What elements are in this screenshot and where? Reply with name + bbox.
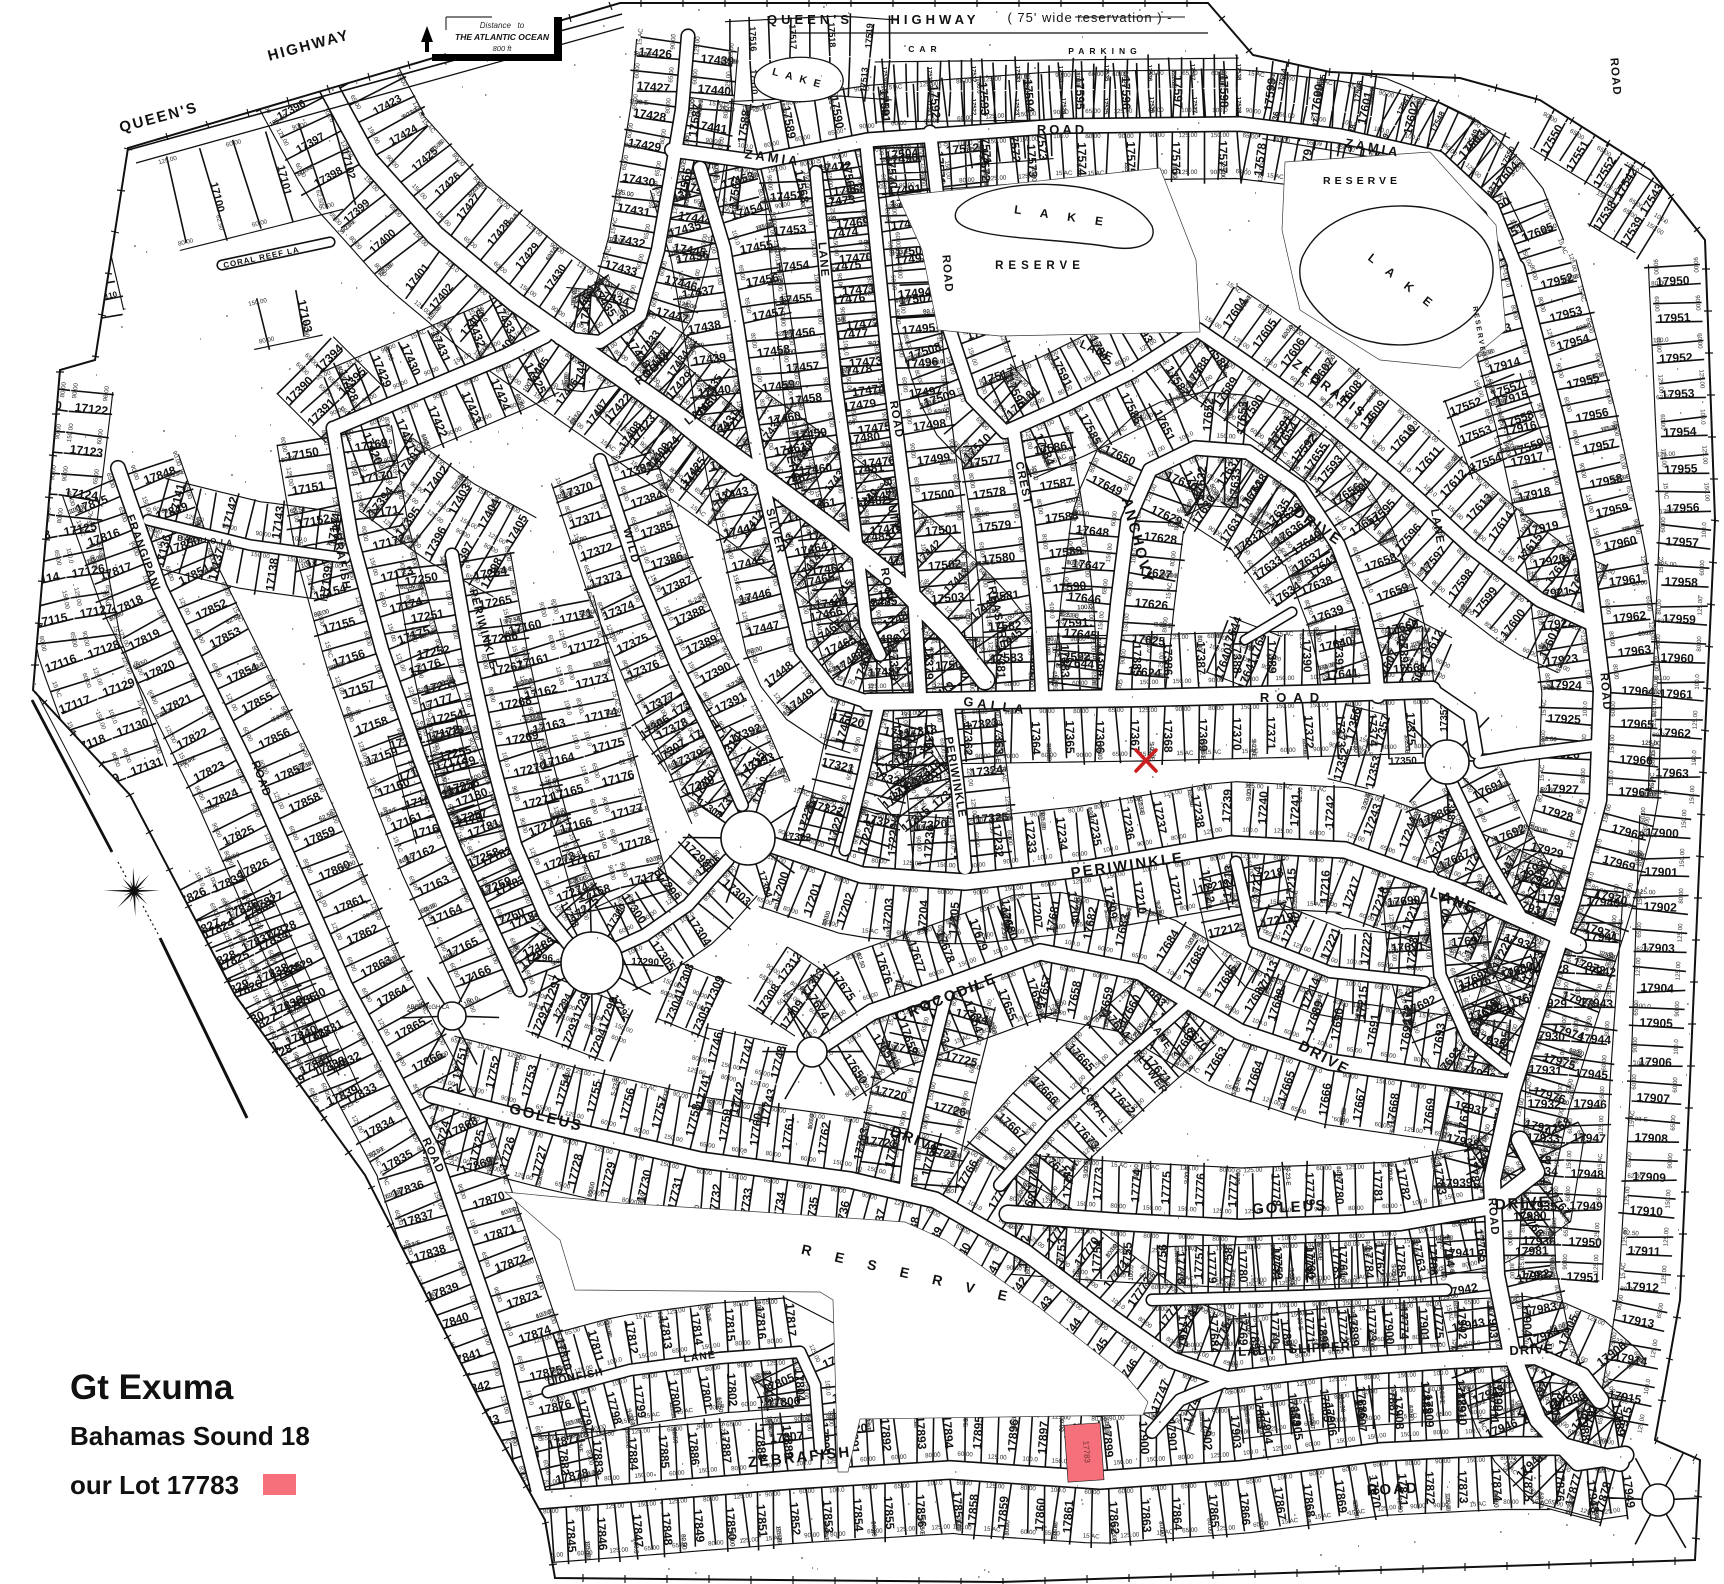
svg-text:90.00: 90.00 bbox=[1212, 1407, 1228, 1415]
svg-text:17535: 17535 bbox=[1103, 65, 1109, 82]
svg-text:90.00: 90.00 bbox=[1055, 72, 1071, 79]
svg-text:60.00: 60.00 bbox=[1534, 942, 1542, 958]
svg-text:80.00: 80.00 bbox=[1075, 1261, 1083, 1277]
svg-text:90.00: 90.00 bbox=[1118, 133, 1134, 140]
svg-text:65.00: 65.00 bbox=[1607, 952, 1615, 968]
svg-text:125.00: 125.00 bbox=[867, 683, 887, 690]
svg-text:100.0: 100.0 bbox=[955, 1515, 963, 1531]
svg-text:S-23-E: S-23-E bbox=[984, 659, 1004, 667]
svg-text:100.0: 100.0 bbox=[1045, 744, 1052, 760]
svg-text:90.00: 90.00 bbox=[1562, 1254, 1570, 1270]
svg-text:17904: 17904 bbox=[1640, 980, 1674, 995]
svg-text:62.50: 62.50 bbox=[1122, 71, 1129, 87]
svg-text:80.00: 80.00 bbox=[1620, 1286, 1636, 1294]
svg-text:100.0: 100.0 bbox=[841, 340, 849, 357]
svg-text:62.50: 62.50 bbox=[1235, 1168, 1243, 1184]
svg-text:90.00: 90.00 bbox=[1579, 914, 1587, 930]
svg-text:90.00: 90.00 bbox=[1070, 636, 1086, 643]
svg-text:125.00: 125.00 bbox=[1197, 1409, 1205, 1429]
svg-text:17370: 17370 bbox=[1230, 717, 1245, 751]
svg-text:125.00: 125.00 bbox=[987, 174, 1007, 182]
svg-text:65.00: 65.00 bbox=[1636, 922, 1644, 938]
svg-text:S-23-E: S-23-E bbox=[892, 815, 900, 835]
svg-text:17754: 17754 bbox=[1089, 1239, 1105, 1274]
svg-text:17911: 17911 bbox=[1628, 1243, 1662, 1259]
svg-text:125.00: 125.00 bbox=[1444, 1492, 1452, 1512]
svg-text:60.00: 60.00 bbox=[1216, 1282, 1232, 1290]
svg-text:60.00: 60.00 bbox=[893, 232, 901, 248]
svg-text:125.00: 125.00 bbox=[1659, 507, 1679, 515]
svg-text:S-23-E: S-23-E bbox=[1184, 1165, 1192, 1185]
svg-text:17875: 17875 bbox=[1521, 1468, 1535, 1502]
svg-text:150.00: 150.00 bbox=[1558, 1048, 1566, 1068]
svg-text:65.00: 65.00 bbox=[1436, 1410, 1452, 1418]
svg-text:90.00: 90.00 bbox=[804, 1531, 820, 1539]
svg-text:90.00: 90.00 bbox=[1560, 1015, 1568, 1031]
svg-text:125.00: 125.00 bbox=[1656, 450, 1676, 458]
svg-text:150.00: 150.00 bbox=[1076, 1200, 1096, 1208]
svg-text:15 AC: 15 AC bbox=[1538, 879, 1546, 897]
svg-text:65.00: 65.00 bbox=[1307, 631, 1323, 639]
svg-text:125.00: 125.00 bbox=[1348, 1306, 1356, 1326]
svg-text:17886: 17886 bbox=[686, 1431, 703, 1466]
svg-text:125.00: 125.00 bbox=[1598, 1115, 1606, 1135]
svg-text:62.50: 62.50 bbox=[926, 82, 934, 98]
svg-text:17525: 17525 bbox=[1102, 98, 1108, 115]
svg-text:17925: 17925 bbox=[1547, 711, 1581, 726]
svg-text:80.00: 80.00 bbox=[910, 823, 927, 831]
svg-text:17845: 17845 bbox=[563, 1519, 579, 1554]
svg-text:S-23-E: S-23-E bbox=[1648, 789, 1667, 797]
svg-text:90.00: 90.00 bbox=[975, 753, 991, 760]
svg-text:S-23-E: S-23-E bbox=[890, 248, 910, 256]
svg-text:60.00: 60.00 bbox=[1088, 71, 1104, 78]
svg-text:125.00: 125.00 bbox=[1178, 132, 1198, 139]
svg-text:90.00: 90.00 bbox=[697, 1422, 714, 1430]
svg-text:80.00: 80.00 bbox=[727, 1531, 735, 1548]
svg-text:80.00: 80.00 bbox=[1362, 1345, 1378, 1353]
svg-text:125.00: 125.00 bbox=[1345, 1164, 1365, 1172]
svg-text:17861: 17861 bbox=[1060, 1499, 1076, 1534]
svg-text:60.00: 60.00 bbox=[891, 119, 907, 127]
svg-text:17530: 17530 bbox=[881, 67, 887, 84]
svg-text:80.00: 80.00 bbox=[830, 1530, 846, 1538]
svg-text:125.00: 125.00 bbox=[1183, 1305, 1203, 1313]
svg-text:150.00: 150.00 bbox=[1665, 1189, 1673, 1209]
svg-text:17902: 17902 bbox=[1643, 899, 1677, 914]
svg-text:80.00: 80.00 bbox=[604, 1474, 620, 1482]
svg-text:125.00: 125.00 bbox=[1278, 1280, 1298, 1288]
svg-text:65.00: 65.00 bbox=[1563, 1221, 1571, 1237]
svg-text:15 AC: 15 AC bbox=[885, 83, 903, 91]
svg-text:S-23-E: S-23-E bbox=[1364, 1239, 1372, 1258]
svg-text:65.00: 65.00 bbox=[1182, 70, 1198, 77]
svg-text:100.0: 100.0 bbox=[1554, 1152, 1562, 1168]
svg-text:80.00: 80.00 bbox=[1550, 1254, 1558, 1270]
svg-text:125.00: 125.00 bbox=[985, 112, 1005, 120]
svg-text:125.00: 125.00 bbox=[1701, 445, 1709, 465]
svg-text:17296: 17296 bbox=[525, 953, 554, 965]
svg-text:125.00: 125.00 bbox=[1697, 596, 1705, 616]
svg-text:90.00: 90.00 bbox=[1569, 1084, 1577, 1100]
svg-text:17905: 17905 bbox=[1639, 1015, 1673, 1030]
svg-text:150.00: 150.00 bbox=[1177, 1206, 1197, 1214]
svg-text:17895: 17895 bbox=[970, 1415, 986, 1450]
svg-text:90.00: 90.00 bbox=[854, 85, 870, 93]
svg-text:90.00: 90.00 bbox=[1345, 673, 1361, 681]
svg-text:100.0: 100.0 bbox=[1128, 1264, 1136, 1280]
svg-text:17519: 17519 bbox=[863, 23, 875, 49]
svg-text:80.00: 80.00 bbox=[1580, 768, 1588, 784]
svg-text:80.00: 80.00 bbox=[1335, 1166, 1343, 1182]
svg-text:125.00: 125.00 bbox=[1519, 1253, 1527, 1273]
svg-text:17855: 17855 bbox=[881, 1496, 897, 1531]
svg-text:80.00: 80.00 bbox=[1218, 70, 1225, 86]
svg-text:65.00: 65.00 bbox=[1599, 1086, 1607, 1102]
svg-text:S-23-E: S-23-E bbox=[1284, 1166, 1292, 1185]
svg-text:17958: 17958 bbox=[1664, 574, 1698, 589]
svg-text:80.00: 80.00 bbox=[679, 1534, 687, 1551]
svg-text:90.00: 90.00 bbox=[1415, 627, 1431, 635]
svg-text:17364: 17364 bbox=[1029, 721, 1044, 755]
svg-text:150.00: 150.00 bbox=[1466, 1456, 1486, 1464]
svg-text:S-23-E: S-23-E bbox=[1432, 1184, 1451, 1192]
svg-text:80.00: 80.00 bbox=[1438, 1387, 1446, 1403]
svg-text:S-23-E: S-23-E bbox=[1456, 1400, 1464, 1420]
svg-text:125.00: 125.00 bbox=[902, 859, 922, 867]
svg-text:100.0: 100.0 bbox=[1310, 674, 1326, 682]
svg-text:125.00: 125.00 bbox=[1390, 1388, 1398, 1408]
svg-text:17864: 17864 bbox=[1169, 1497, 1185, 1532]
svg-text:62.50: 62.50 bbox=[1297, 786, 1305, 802]
svg-text:80.00: 80.00 bbox=[1171, 163, 1178, 179]
svg-text:15 AC: 15 AC bbox=[1541, 699, 1549, 717]
svg-text:125.00: 125.00 bbox=[1661, 1265, 1669, 1285]
svg-text:17367: 17367 bbox=[1128, 719, 1143, 753]
svg-text:60.00: 60.00 bbox=[1004, 681, 1020, 688]
svg-text:17365: 17365 bbox=[1063, 720, 1078, 754]
svg-text:100.0: 100.0 bbox=[1608, 770, 1616, 786]
svg-text:17817: 17817 bbox=[783, 1303, 799, 1338]
svg-text:80.00: 80.00 bbox=[1157, 1521, 1165, 1537]
svg-text:125.00: 125.00 bbox=[1148, 1247, 1168, 1255]
svg-text:15 AC: 15 AC bbox=[1082, 1532, 1100, 1540]
svg-text:17368: 17368 bbox=[1161, 719, 1176, 753]
svg-text:15 AC: 15 AC bbox=[1526, 1081, 1534, 1099]
svg-text:80.00: 80.00 bbox=[1452, 1301, 1460, 1317]
svg-text:100.0: 100.0 bbox=[1048, 603, 1056, 619]
svg-text:100.0: 100.0 bbox=[1635, 1003, 1651, 1011]
svg-text:17776: 17776 bbox=[1192, 1172, 1208, 1206]
svg-text:65.00: 65.00 bbox=[1182, 1526, 1198, 1534]
svg-text:100.0: 100.0 bbox=[1653, 337, 1669, 345]
svg-text:125.00: 125.00 bbox=[1657, 374, 1665, 394]
svg-text:17965: 17965 bbox=[1620, 716, 1654, 731]
svg-text:62.50: 62.50 bbox=[917, 1518, 925, 1534]
svg-text:17521: 17521 bbox=[926, 100, 932, 117]
svg-text:125.00: 125.00 bbox=[1416, 1326, 1424, 1346]
svg-text:80.00: 80.00 bbox=[1405, 1460, 1421, 1468]
svg-text:80.00: 80.00 bbox=[731, 1464, 748, 1472]
svg-text:90.00: 90.00 bbox=[1110, 1271, 1126, 1279]
svg-text:17815: 17815 bbox=[722, 1308, 738, 1343]
svg-text:80.00: 80.00 bbox=[943, 819, 951, 835]
svg-text:65.00: 65.00 bbox=[1475, 874, 1483, 891]
svg-text:60.00: 60.00 bbox=[1365, 1414, 1381, 1422]
svg-text:100.0: 100.0 bbox=[1082, 1160, 1090, 1176]
svg-text:90.00: 90.00 bbox=[1692, 257, 1700, 273]
svg-text:15 AC: 15 AC bbox=[861, 927, 879, 935]
svg-text:100.0: 100.0 bbox=[864, 671, 880, 679]
svg-text:100.0: 100.0 bbox=[1574, 981, 1582, 997]
svg-text:80.00: 80.00 bbox=[1245, 1244, 1261, 1252]
svg-text:17961: 17961 bbox=[1659, 686, 1693, 701]
svg-text:125.00: 125.00 bbox=[1403, 734, 1411, 754]
svg-text:60.00: 60.00 bbox=[1430, 1341, 1446, 1349]
svg-text:15 AC: 15 AC bbox=[1309, 786, 1327, 794]
svg-text:80.00: 80.00 bbox=[708, 1539, 725, 1547]
svg-text:90.00: 90.00 bbox=[1053, 109, 1069, 116]
svg-text:90.00: 90.00 bbox=[1652, 259, 1660, 275]
svg-text:90.00: 90.00 bbox=[1410, 1503, 1426, 1511]
svg-text:150.00: 150.00 bbox=[1017, 110, 1037, 118]
svg-text:80.00: 80.00 bbox=[1650, 751, 1658, 767]
svg-text:150.00: 150.00 bbox=[1142, 1205, 1162, 1213]
svg-text:100.0: 100.0 bbox=[1003, 1519, 1011, 1535]
svg-text:90.00: 90.00 bbox=[1632, 1037, 1640, 1053]
svg-text:80.00: 80.00 bbox=[664, 97, 672, 114]
svg-text:80.00: 80.00 bbox=[1051, 1522, 1059, 1538]
svg-text:80.00: 80.00 bbox=[1178, 1453, 1194, 1461]
svg-text:80.00: 80.00 bbox=[1520, 1217, 1528, 1233]
svg-text:60.00: 60.00 bbox=[1005, 830, 1013, 847]
svg-text:90.00: 90.00 bbox=[573, 1476, 589, 1484]
svg-text:100.0: 100.0 bbox=[1077, 604, 1093, 612]
svg-text:125.00: 125.00 bbox=[1273, 828, 1293, 836]
svg-text:62.50: 62.50 bbox=[1412, 1239, 1420, 1255]
svg-text:15 AC: 15 AC bbox=[1142, 1164, 1160, 1172]
svg-text:125.00: 125.00 bbox=[1638, 832, 1658, 840]
svg-text:90.00: 90.00 bbox=[1506, 1230, 1514, 1246]
svg-text:80.00: 80.00 bbox=[1096, 744, 1103, 760]
svg-text:125.00: 125.00 bbox=[1636, 889, 1656, 897]
svg-text:100.0: 100.0 bbox=[631, 98, 648, 106]
svg-text:62.50: 62.50 bbox=[1656, 394, 1672, 402]
svg-text:60.00: 60.00 bbox=[860, 1455, 876, 1463]
svg-text:80.00: 80.00 bbox=[1205, 1518, 1213, 1534]
svg-text:150.00: 150.00 bbox=[1566, 1150, 1574, 1170]
svg-text:S-23-E: S-23-E bbox=[821, 1522, 829, 1542]
svg-text:80.00: 80.00 bbox=[1524, 1118, 1532, 1134]
svg-text:150.00: 150.00 bbox=[1139, 679, 1159, 686]
svg-text:17955: 17955 bbox=[1664, 461, 1698, 477]
svg-text:90.00: 90.00 bbox=[1003, 753, 1019, 760]
svg-text:17872: 17872 bbox=[1422, 1471, 1438, 1505]
svg-text:60.00: 60.00 bbox=[741, 1400, 757, 1408]
svg-text:125.00: 125.00 bbox=[1041, 1197, 1061, 1205]
svg-text:62.50: 62.50 bbox=[1657, 618, 1673, 626]
svg-text:150.00: 150.00 bbox=[1411, 671, 1431, 679]
svg-text:125.00: 125.00 bbox=[623, 1429, 631, 1449]
svg-text:15 AC: 15 AC bbox=[1176, 750, 1194, 757]
svg-text:60.00: 60.00 bbox=[1567, 1118, 1575, 1134]
svg-text:90.00: 90.00 bbox=[1175, 706, 1191, 713]
svg-text:60.00: 60.00 bbox=[1382, 1203, 1398, 1211]
svg-text:150.00: 150.00 bbox=[1216, 432, 1236, 440]
svg-text:100.0: 100.0 bbox=[1386, 1164, 1394, 1180]
svg-text:100.0: 100.0 bbox=[1492, 1492, 1500, 1508]
svg-text:150.00: 150.00 bbox=[1245, 1281, 1265, 1289]
svg-text:60.00: 60.00 bbox=[1183, 1283, 1199, 1291]
svg-text:15 AC: 15 AC bbox=[1358, 1304, 1376, 1312]
svg-text:15 AC: 15 AC bbox=[1219, 393, 1237, 401]
svg-text:80.00: 80.00 bbox=[1696, 636, 1704, 652]
svg-text:S-23-E: S-23-E bbox=[1221, 1244, 1229, 1263]
svg-text:100.0: 100.0 bbox=[1242, 827, 1258, 835]
svg-text:60.00: 60.00 bbox=[1377, 1336, 1393, 1344]
svg-text:125.00: 125.00 bbox=[1210, 1451, 1230, 1459]
svg-text:17240: 17240 bbox=[1255, 790, 1271, 824]
svg-text:80.00: 80.00 bbox=[1301, 739, 1309, 755]
svg-text:65.00: 65.00 bbox=[667, 66, 675, 83]
svg-text:125.00: 125.00 bbox=[953, 613, 973, 621]
svg-text:60.00: 60.00 bbox=[957, 1450, 973, 1458]
svg-text:62.50: 62.50 bbox=[1399, 1304, 1407, 1320]
svg-text:150.00: 150.00 bbox=[1374, 1299, 1394, 1307]
svg-text:90.00: 90.00 bbox=[1076, 752, 1092, 759]
svg-text:125.00: 125.00 bbox=[1212, 1208, 1232, 1216]
svg-text:100.0: 100.0 bbox=[1633, 1060, 1649, 1068]
svg-text:65.00: 65.00 bbox=[762, 1298, 778, 1306]
svg-text:17522: 17522 bbox=[970, 99, 976, 116]
svg-text:80.00: 80.00 bbox=[1638, 851, 1646, 867]
svg-text:60.00: 60.00 bbox=[1470, 1409, 1486, 1417]
svg-text:125.00: 125.00 bbox=[1593, 1254, 1601, 1274]
svg-text:125.00: 125.00 bbox=[865, 652, 873, 672]
svg-text:100.0: 100.0 bbox=[1095, 638, 1102, 654]
svg-text:125.00: 125.00 bbox=[1641, 740, 1661, 748]
svg-text:62.50: 62.50 bbox=[936, 924, 944, 940]
svg-text:60.00: 60.00 bbox=[924, 117, 940, 125]
svg-text:80.00: 80.00 bbox=[1569, 1050, 1577, 1066]
svg-text:60.00: 60.00 bbox=[1446, 940, 1454, 957]
svg-text:17457: 17457 bbox=[785, 359, 820, 376]
svg-text:17775: 17775 bbox=[1431, 1305, 1446, 1339]
svg-text:125.00: 125.00 bbox=[987, 1453, 1007, 1461]
svg-text:125.00: 125.00 bbox=[1434, 1235, 1454, 1243]
svg-text:17908: 17908 bbox=[1634, 1130, 1668, 1146]
svg-text:125.00: 125.00 bbox=[1243, 1167, 1263, 1175]
svg-text:80.00: 80.00 bbox=[1503, 1499, 1519, 1506]
svg-text:125.00: 125.00 bbox=[583, 1540, 591, 1560]
svg-text:90.00: 90.00 bbox=[1282, 1243, 1298, 1251]
svg-text:100.0: 100.0 bbox=[1498, 1427, 1514, 1434]
svg-text:80.00: 80.00 bbox=[1348, 1205, 1364, 1213]
svg-text:125.00: 125.00 bbox=[933, 682, 953, 689]
svg-text:125.00: 125.00 bbox=[1657, 561, 1677, 569]
svg-text:60.00: 60.00 bbox=[1151, 1284, 1167, 1292]
svg-text:62.50: 62.50 bbox=[575, 1435, 583, 1451]
svg-text:65.00: 65.00 bbox=[1596, 1188, 1604, 1204]
svg-text:90.00: 90.00 bbox=[1152, 1306, 1168, 1314]
svg-text:60.00: 60.00 bbox=[1600, 1054, 1608, 1070]
svg-text:100.0: 100.0 bbox=[1691, 750, 1699, 766]
svg-text:17517: 17517 bbox=[787, 24, 798, 50]
svg-text:80.00: 80.00 bbox=[780, 348, 797, 356]
svg-text:60.00: 60.00 bbox=[972, 832, 980, 849]
svg-text:125.00: 125.00 bbox=[1169, 634, 1189, 641]
svg-text:80.00: 80.00 bbox=[1009, 1195, 1025, 1203]
svg-text:17954: 17954 bbox=[1663, 424, 1697, 440]
svg-text:125.00: 125.00 bbox=[1651, 710, 1659, 730]
svg-text:80.00: 80.00 bbox=[1433, 1429, 1449, 1437]
svg-text:17849: 17849 bbox=[691, 1508, 708, 1543]
svg-text:90.00: 90.00 bbox=[1400, 1387, 1416, 1395]
svg-text:17957: 17957 bbox=[1665, 534, 1699, 549]
svg-text:17520: 17520 bbox=[882, 100, 888, 117]
svg-text:100.0: 100.0 bbox=[823, 1380, 831, 1397]
svg-text:90.00: 90.00 bbox=[968, 637, 984, 644]
svg-text:60.00: 60.00 bbox=[1497, 1383, 1513, 1390]
svg-text:150.00: 150.00 bbox=[1681, 809, 1689, 829]
svg-text:17897: 17897 bbox=[1035, 1420, 1051, 1455]
svg-text:17907: 17907 bbox=[1636, 1090, 1670, 1106]
svg-text:60.00: 60.00 bbox=[785, 380, 793, 397]
svg-text:150.00: 150.00 bbox=[1703, 482, 1711, 502]
svg-text:60.00: 60.00 bbox=[1557, 1084, 1565, 1100]
svg-text:17863: 17863 bbox=[1138, 1499, 1154, 1534]
svg-text:80.00: 80.00 bbox=[961, 575, 969, 592]
svg-text:80.00: 80.00 bbox=[1027, 672, 1035, 688]
svg-text:17873: 17873 bbox=[1455, 1470, 1471, 1504]
svg-text:17371: 17371 bbox=[1264, 716, 1279, 750]
svg-text:125.00: 125.00 bbox=[1138, 707, 1158, 714]
svg-text:17852: 17852 bbox=[787, 1501, 804, 1536]
svg-text:80.00: 80.00 bbox=[1562, 981, 1570, 997]
svg-text:80.00: 80.00 bbox=[1175, 1336, 1183, 1352]
svg-text:80.00: 80.00 bbox=[1377, 1240, 1393, 1248]
svg-text:80.00: 80.00 bbox=[1603, 1020, 1611, 1036]
svg-text:60.00: 60.00 bbox=[1660, 517, 1668, 533]
svg-text:100.0: 100.0 bbox=[1133, 1163, 1141, 1179]
svg-text:90.00: 90.00 bbox=[765, 175, 773, 192]
svg-text:S-23-E: S-23-E bbox=[1628, 1116, 1648, 1124]
svg-text:80.00: 80.00 bbox=[959, 176, 975, 184]
svg-text:90.00: 90.00 bbox=[899, 181, 915, 189]
svg-text:80.00: 80.00 bbox=[922, 579, 930, 596]
svg-text:S-23-E: S-23-E bbox=[1316, 1241, 1324, 1260]
svg-text:80.00: 80.00 bbox=[1656, 599, 1664, 615]
svg-text:17858: 17858 bbox=[965, 1493, 981, 1528]
svg-text:17775: 17775 bbox=[1158, 1170, 1174, 1204]
svg-text:90.00: 90.00 bbox=[669, 33, 677, 50]
svg-text:65.00: 65.00 bbox=[1314, 1234, 1330, 1242]
svg-text:17892: 17892 bbox=[878, 1418, 894, 1453]
svg-text:125.00: 125.00 bbox=[1109, 1523, 1117, 1543]
svg-text:17854: 17854 bbox=[850, 1498, 866, 1533]
svg-text:60.00: 60.00 bbox=[1696, 333, 1704, 349]
svg-text:15 AC: 15 AC bbox=[1662, 482, 1670, 500]
svg-text:125.00: 125.00 bbox=[595, 1430, 615, 1438]
svg-text:100.0: 100.0 bbox=[1673, 1039, 1681, 1055]
svg-text:80.00: 80.00 bbox=[775, 276, 783, 293]
svg-text:100.0: 100.0 bbox=[1701, 522, 1709, 538]
svg-text:100.0: 100.0 bbox=[1699, 409, 1707, 425]
svg-text:150.00: 150.00 bbox=[1275, 675, 1295, 682]
svg-text:125.00: 125.00 bbox=[1677, 923, 1685, 943]
svg-text:62.50: 62.50 bbox=[1355, 1409, 1363, 1425]
svg-text:90.00: 90.00 bbox=[1313, 746, 1329, 754]
